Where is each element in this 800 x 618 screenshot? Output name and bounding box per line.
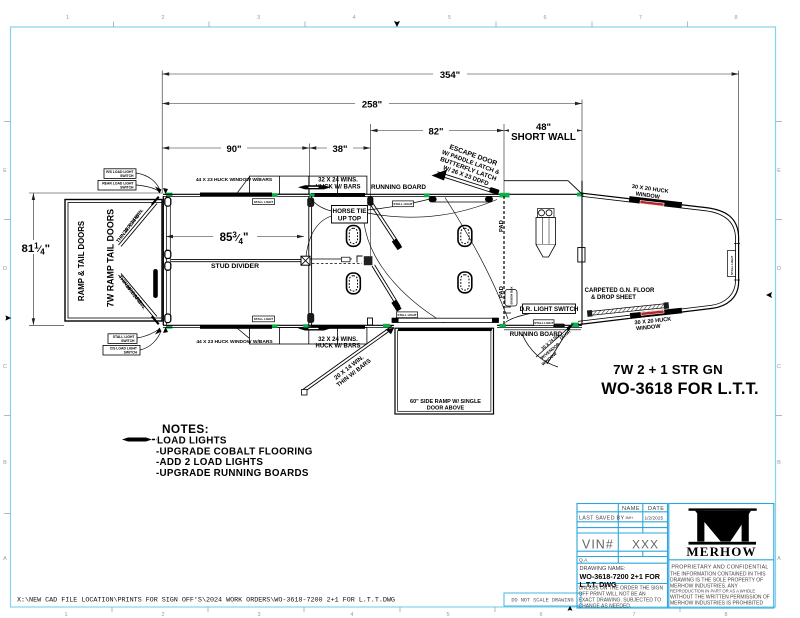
- svg-text:6: 6: [543, 15, 546, 21]
- svg-text:1: 1: [66, 15, 69, 21]
- svg-text:82": 82": [428, 126, 443, 137]
- svg-text:32 X 24 WINS.: 32 X 24 WINS.: [318, 177, 358, 183]
- svg-text:SWITCH: SWITCH: [124, 351, 138, 355]
- svg-text:A: A: [3, 556, 7, 562]
- svg-text:4: 4: [350, 612, 353, 618]
- svg-text:SWITCH: SWITCH: [120, 174, 134, 178]
- svg-text:5: 5: [446, 612, 449, 618]
- svg-text:SWITCH: SWITCH: [121, 339, 135, 343]
- svg-text:-UPGRADE COBALT FLOORING: -UPGRADE COBALT FLOORING: [156, 446, 313, 457]
- svg-text:DATE: DATE: [648, 506, 665, 512]
- svg-text:RAMP & TAIL DOORS: RAMP & TAIL DOORS: [77, 221, 86, 301]
- svg-text:PAD: PAD: [499, 220, 505, 232]
- svg-text:D.R. LIGHT SWITCH: D.R. LIGHT SWITCH: [520, 306, 579, 313]
- svg-text:E: E: [3, 168, 7, 174]
- svg-text:CHANGE AS NEEDED.: CHANGE AS NEEDED.: [579, 604, 632, 610]
- svg-text:1/2/2025: 1/2/2025: [645, 515, 664, 521]
- svg-text:STALL LIGHT: STALL LIGHT: [254, 200, 273, 204]
- svg-text:SWITCH: SWITCH: [120, 186, 134, 190]
- svg-text:7W RAMP TAIL DOORS: 7W RAMP TAIL DOORS: [106, 209, 116, 307]
- svg-text:3: 3: [257, 612, 260, 618]
- svg-text:32 X 24 WINS.: 32 X 24 WINS.: [318, 337, 358, 343]
- svg-text:VIN#: VIN#: [582, 538, 614, 552]
- svg-text:HORSE TIE: HORSE TIE: [333, 208, 367, 215]
- svg-text:NOTES:: NOTES:: [162, 422, 209, 436]
- svg-text:C: C: [777, 364, 781, 370]
- svg-text:DOOR ABOVE: DOOR ABOVE: [427, 406, 465, 412]
- svg-text:LOAD LIGHTS: LOAD LIGHTS: [157, 436, 227, 447]
- svg-text:STALL LIGHT: STALL LIGHT: [254, 317, 273, 321]
- svg-text:X:\NEW CAD FILE LOCATION\PRINT: X:\NEW CAD FILE LOCATION\PRINTS FOR SIGN…: [17, 597, 395, 605]
- svg-text:Q.A.: Q.A.: [579, 557, 589, 563]
- svg-text:8: 8: [724, 612, 727, 618]
- svg-text:BRUSH BOX: BRUSH BOX: [510, 286, 514, 304]
- svg-text:JMH: JMH: [625, 516, 633, 520]
- svg-text:PROPRIETARY AND CONFIDENTIAL: PROPRIETARY AND CONFIDENTIAL: [671, 565, 768, 571]
- svg-text:MERHOW INDUSTRIES IS PROHIBITE: MERHOW INDUSTRIES IS PROHIBITED: [670, 601, 763, 607]
- svg-text:1: 1: [64, 612, 67, 618]
- svg-text:MERHOW: MERHOW: [686, 544, 756, 559]
- svg-text:90": 90": [226, 144, 241, 155]
- svg-text:44 X 23 HUCK WINDOW W/BARS: 44 X 23 HUCK WINDOW W/BARS: [196, 339, 273, 345]
- svg-text:D: D: [777, 266, 781, 272]
- svg-text:E: E: [777, 168, 781, 174]
- svg-text:60" SIDE RAMP W/ SINGLE: 60" SIDE RAMP W/ SINGLE: [410, 399, 481, 405]
- svg-text:STALL LIGHT: STALL LIGHT: [730, 256, 734, 275]
- svg-text:8: 8: [734, 15, 737, 21]
- svg-text:258": 258": [362, 99, 382, 110]
- svg-text:D: D: [3, 266, 7, 272]
- svg-text:2: 2: [161, 612, 164, 618]
- svg-text:DO NOT SCALE DRAWING: DO NOT SCALE DRAWING: [511, 598, 573, 604]
- svg-text:SHORT WALL: SHORT WALL: [511, 132, 576, 143]
- svg-text:2: 2: [161, 15, 164, 21]
- svg-text:REPRODUCTION IN PART OR AS A W: REPRODUCTION IN PART OR AS A WHOLE: [670, 589, 755, 594]
- svg-text:44 X 23 HUCK WINDOW W/BARS: 44 X 23 HUCK WINDOW W/BARS: [196, 177, 273, 183]
- svg-text:& DROP SHEET: & DROP SHEET: [591, 295, 636, 301]
- svg-text:RUNNING BOARD: RUNNING BOARD: [371, 184, 426, 191]
- svg-text:38": 38": [332, 144, 347, 155]
- svg-text:7W 2 + 1 STR GN: 7W 2 + 1 STR GN: [613, 362, 723, 377]
- svg-text:354": 354": [440, 70, 460, 81]
- svg-text:B: B: [777, 460, 781, 466]
- svg-text:CARPETED G.N. FLOOR: CARPETED G.N. FLOOR: [585, 288, 655, 294]
- svg-text:LAST SAVED BY: LAST SAVED BY: [579, 516, 624, 522]
- svg-text:XXX: XXX: [632, 538, 659, 552]
- svg-text:5: 5: [448, 15, 451, 21]
- svg-text:STALL LIGHT: STALL LIGHT: [393, 202, 412, 206]
- svg-text:C: C: [3, 364, 7, 370]
- svg-text:-ADD 2 LOAD LIGHTS: -ADD 2 LOAD LIGHTS: [156, 457, 263, 468]
- svg-text:STALL LIGHT: STALL LIGHT: [534, 321, 553, 325]
- svg-text:HUCK W/ BARS: HUCK W/ BARS: [316, 343, 361, 349]
- svg-text:B: B: [3, 460, 7, 466]
- svg-text:7: 7: [639, 15, 642, 21]
- svg-text:PAD: PAD: [499, 286, 505, 298]
- svg-text:WO-3618 FOR L.T.T.: WO-3618 FOR L.T.T.: [601, 380, 759, 398]
- svg-text:4: 4: [352, 15, 355, 21]
- svg-text:-UPGRADE RUNNING BOARDS: -UPGRADE RUNNING BOARDS: [156, 468, 309, 479]
- svg-text:7: 7: [632, 612, 635, 618]
- svg-text:3: 3: [257, 15, 260, 21]
- svg-text:A: A: [777, 556, 781, 562]
- svg-text:UP TOP: UP TOP: [338, 216, 361, 223]
- svg-text:STUD DIVIDER: STUD DIVIDER: [211, 263, 259, 270]
- svg-text:6: 6: [539, 612, 542, 618]
- svg-text:NAME: NAME: [622, 506, 640, 512]
- svg-text:STALL LIGHT: STALL LIGHT: [397, 313, 416, 317]
